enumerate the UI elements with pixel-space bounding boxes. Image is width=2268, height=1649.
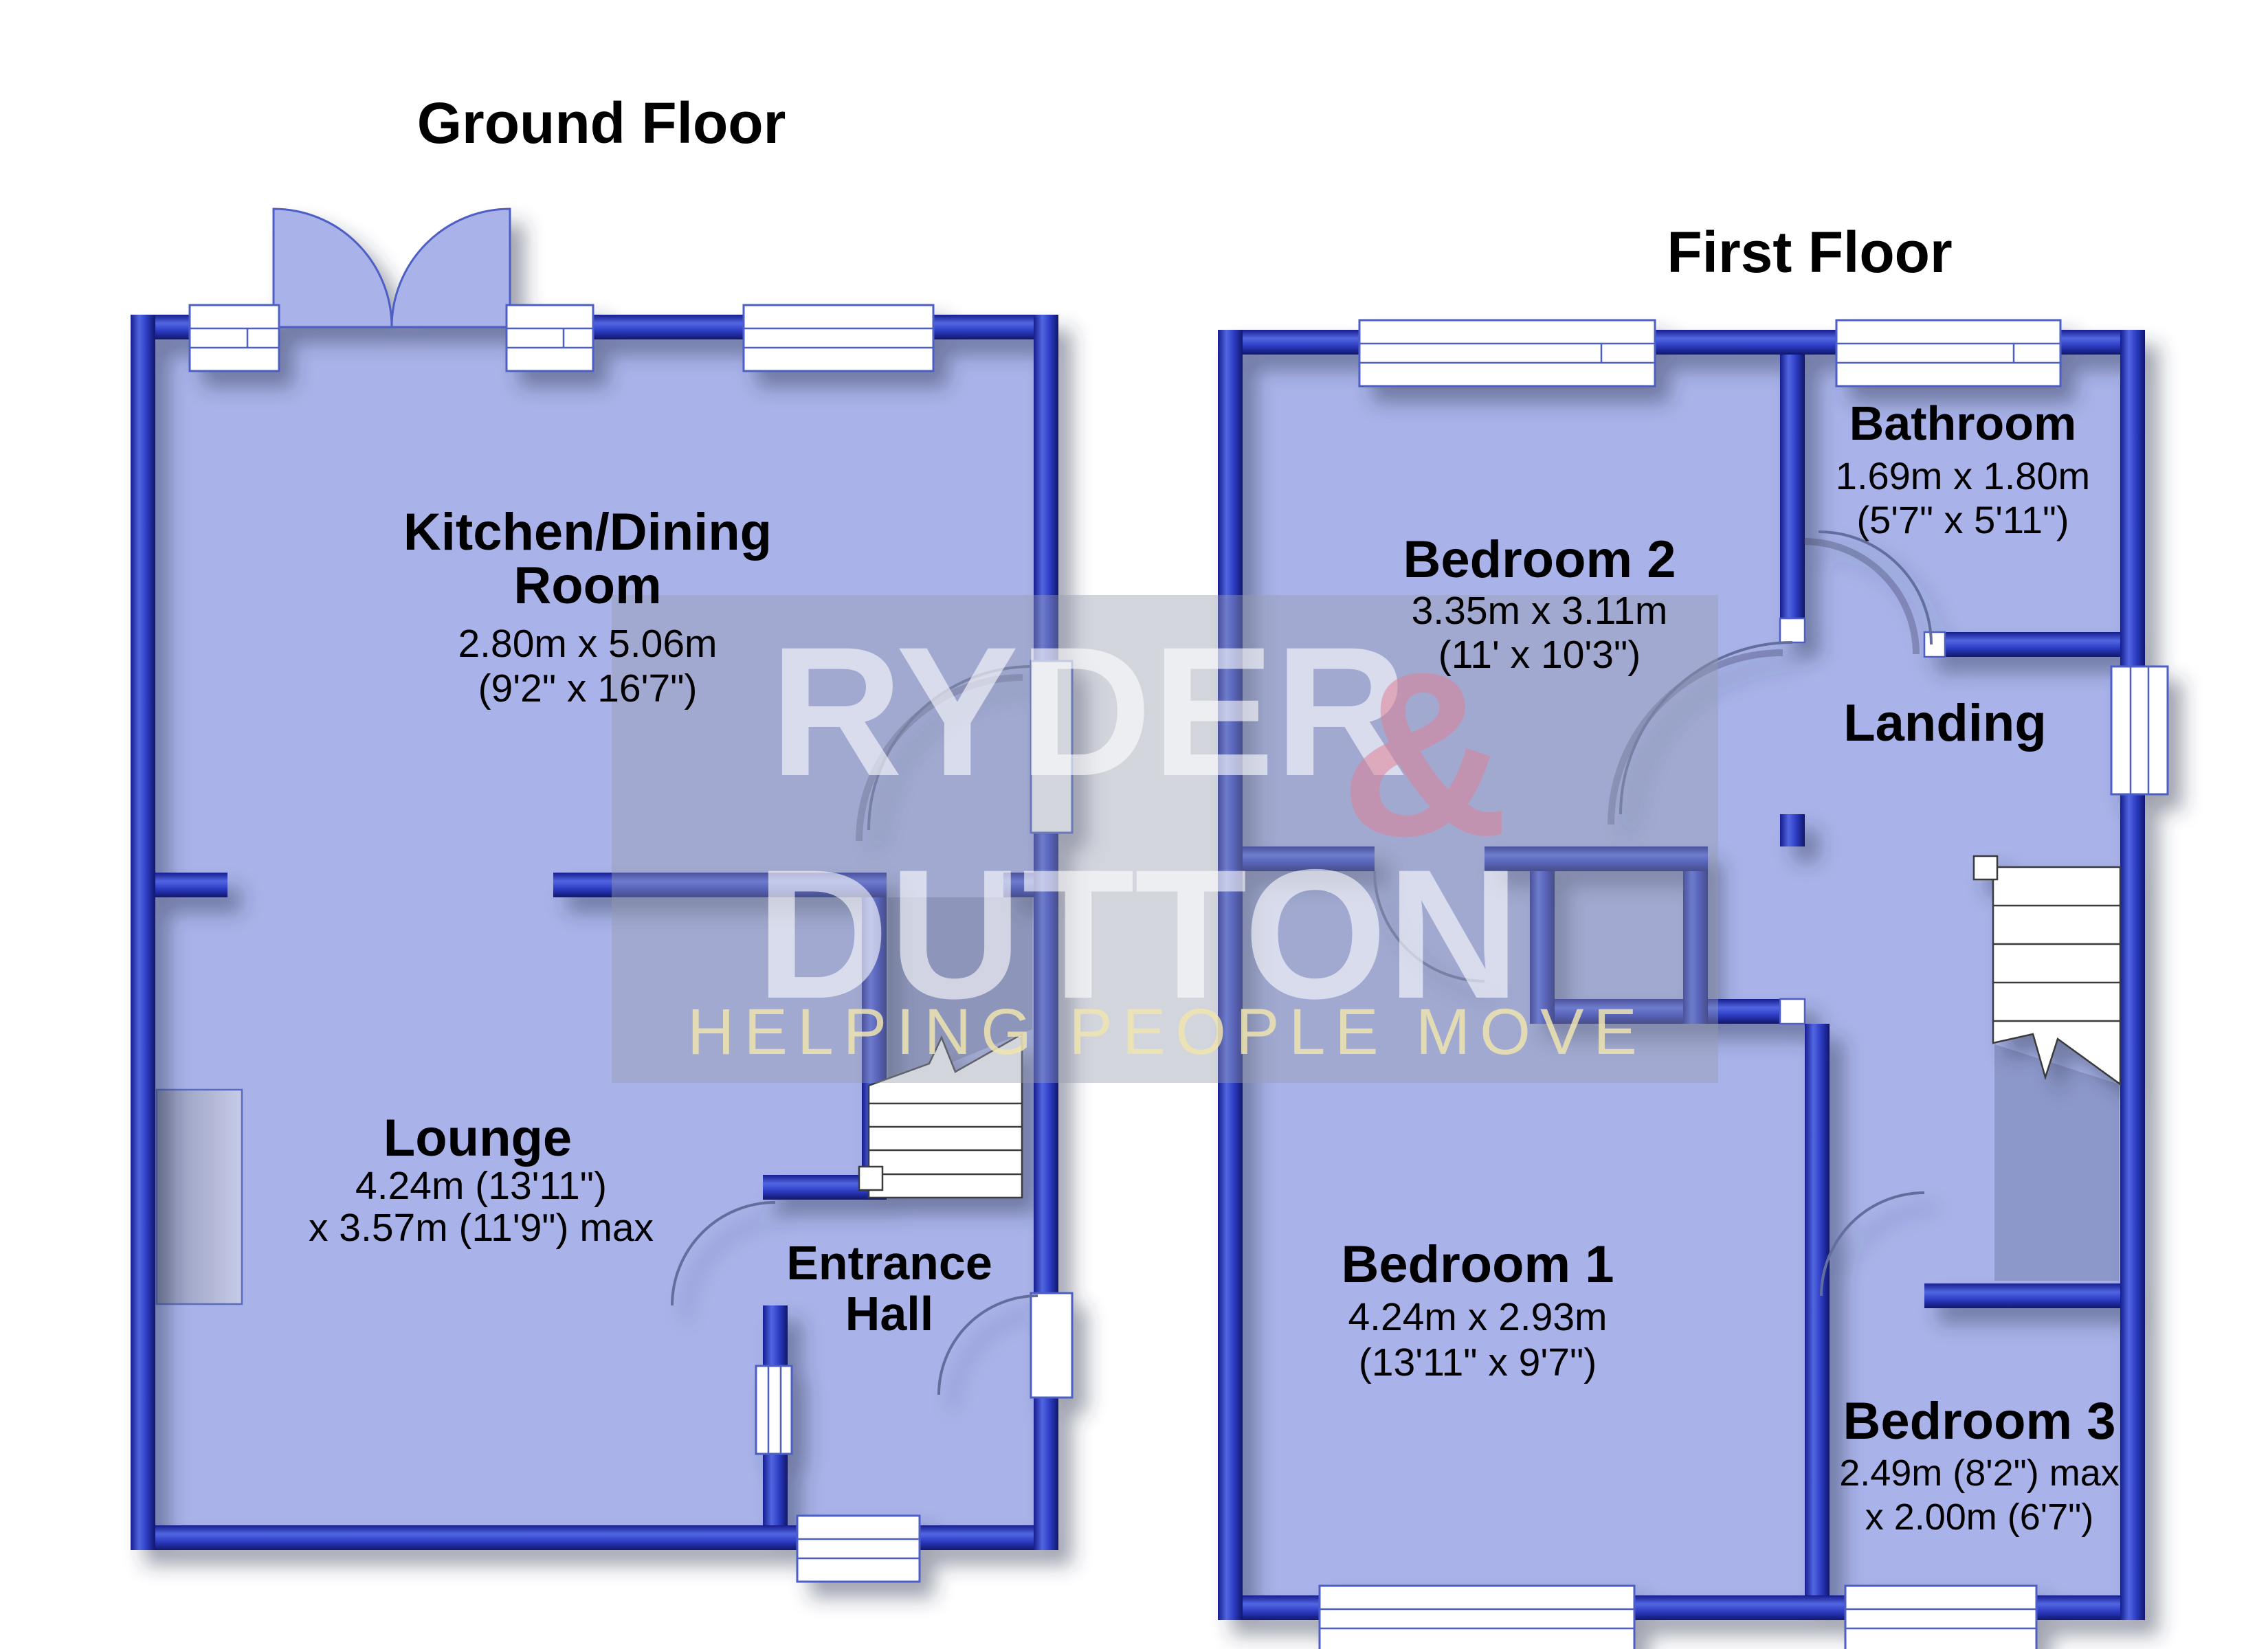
floorplan-drawing: RYDER & DUTTON HELPING PEOPLE MOVE Groun… — [0, 0, 2268, 1649]
room-dims: (11' x 10'3") — [1438, 633, 1641, 677]
room-dims: 4.24m (13'11") — [355, 1164, 607, 1208]
room-label-bedroom1: Bedroom 1 4.24m x 2.93m (13'11" x 9'7") — [1342, 1235, 1614, 1384]
room-dims: x 3.57m (11'9") max — [309, 1206, 654, 1250]
wall — [1034, 1395, 1058, 1550]
window — [797, 1516, 920, 1582]
room-dims: 2.49m (8'2") max — [1839, 1452, 2120, 1494]
watermark-tagline: HELPING PEOPLE MOVE — [687, 996, 1647, 1068]
wall — [588, 315, 749, 339]
room-name: Bathroom — [1849, 396, 2077, 450]
room-label-bathroom: Bathroom 1.69m x 1.80m (5'7" x 5'11") — [1836, 396, 2090, 541]
ground-floor-title: Ground Floor — [417, 91, 786, 155]
floorplan-page: RYDER & DUTTON HELPING PEOPLE MOVE Groun… — [0, 0, 2268, 1649]
newel-post — [1974, 856, 1997, 879]
room-dims: x 2.00m (6'7") — [1865, 1496, 2094, 1538]
room-name: Bedroom 3 — [1843, 1392, 2116, 1450]
first-floor-title: First Floor — [1667, 220, 1952, 284]
understair-shading — [1994, 1044, 2119, 1281]
room-dims: (5'7" x 5'11") — [1856, 498, 2069, 541]
window — [1836, 320, 2060, 386]
room-label-bedroom2: Bedroom 2 3.35m x 3.11m (11' x 10'3") — [1403, 530, 1676, 677]
wall — [2120, 790, 2145, 1620]
room-dims: 4.24m x 2.93m — [1348, 1295, 1607, 1339]
wall — [155, 873, 227, 897]
room-name: Landing — [1843, 694, 2047, 752]
wall — [1629, 1595, 1851, 1620]
room-name: Bedroom 1 — [1342, 1235, 1614, 1294]
room-dims: (9'2" x 16'7") — [478, 666, 698, 710]
door-jamb — [1780, 999, 1805, 1024]
wall — [1649, 330, 1842, 355]
room-dims: 1.69m x 1.80m — [1836, 454, 2090, 497]
room-label-bedroom3: Bedroom 3 2.49m (8'2") max x 2.00m (6'7"… — [1839, 1392, 2120, 1538]
room-name: Hall — [845, 1287, 933, 1340]
room-label-landing: Landing — [1843, 694, 2047, 752]
window — [744, 305, 933, 371]
room-name: Entrance — [786, 1236, 992, 1290]
window — [1845, 1586, 2036, 1649]
window — [1320, 1586, 1634, 1649]
room-name: Room — [513, 557, 661, 615]
room-dims: 2.80m x 5.06m — [458, 622, 717, 666]
door-jamb — [1924, 632, 1945, 657]
bedroom3-wall — [1924, 1283, 2120, 1308]
window — [1359, 320, 1655, 386]
wall — [131, 1525, 803, 1550]
fireplace — [157, 1090, 242, 1304]
wall — [1708, 999, 1780, 1024]
bathroom-wall — [1945, 632, 2120, 657]
room-name: Bedroom 2 — [1403, 530, 1676, 589]
room-name: Lounge — [383, 1109, 572, 1167]
wall — [131, 315, 155, 1550]
window — [507, 305, 593, 371]
watermark-name-line1: RYDER — [770, 608, 1408, 814]
wall — [1780, 814, 1805, 846]
wall — [763, 1305, 788, 1371]
window — [2111, 666, 2168, 794]
window — [756, 1366, 792, 1454]
window — [190, 305, 279, 371]
bedroom-divider-wall — [1805, 1024, 1830, 1595]
room-dims: (13'11" x 9'7") — [1359, 1340, 1597, 1384]
room-dims: 3.35m x 3.11m — [1412, 589, 1668, 633]
wall — [2120, 330, 2145, 670]
french-door-leaf-left — [274, 209, 392, 327]
room-name: Kitchen/Dining — [403, 503, 772, 561]
newel-post — [859, 1167, 882, 1190]
wall — [1780, 355, 1805, 618]
front-door — [1031, 1293, 1072, 1398]
wall — [763, 1450, 788, 1525]
french-door-leaf-right — [392, 209, 510, 327]
door-jamb — [1780, 618, 1805, 642]
